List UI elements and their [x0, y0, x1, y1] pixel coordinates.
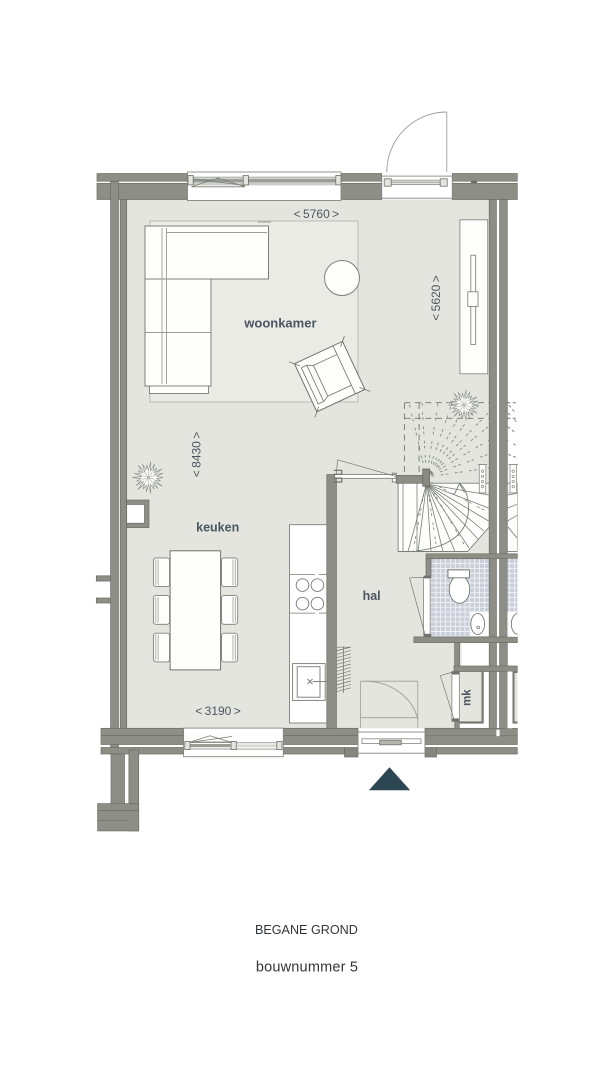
svg-text:woonkamer: woonkamer [243, 316, 316, 331]
svg-text:< 5620 >: < 5620 > [429, 275, 443, 321]
svg-text:< 5760 >: < 5760 > [294, 207, 340, 221]
svg-text:bouwnummer 5: bouwnummer 5 [256, 960, 358, 976]
svg-text:< 3190 >: < 3190 > [195, 704, 241, 718]
svg-text:hal: hal [363, 589, 381, 603]
svg-text:< 8430 >: < 8430 > [190, 432, 204, 478]
svg-text:mk: mk [462, 689, 474, 706]
svg-text:BEGANE GROND: BEGANE GROND [255, 923, 358, 937]
svg-text:keuken: keuken [196, 521, 239, 535]
